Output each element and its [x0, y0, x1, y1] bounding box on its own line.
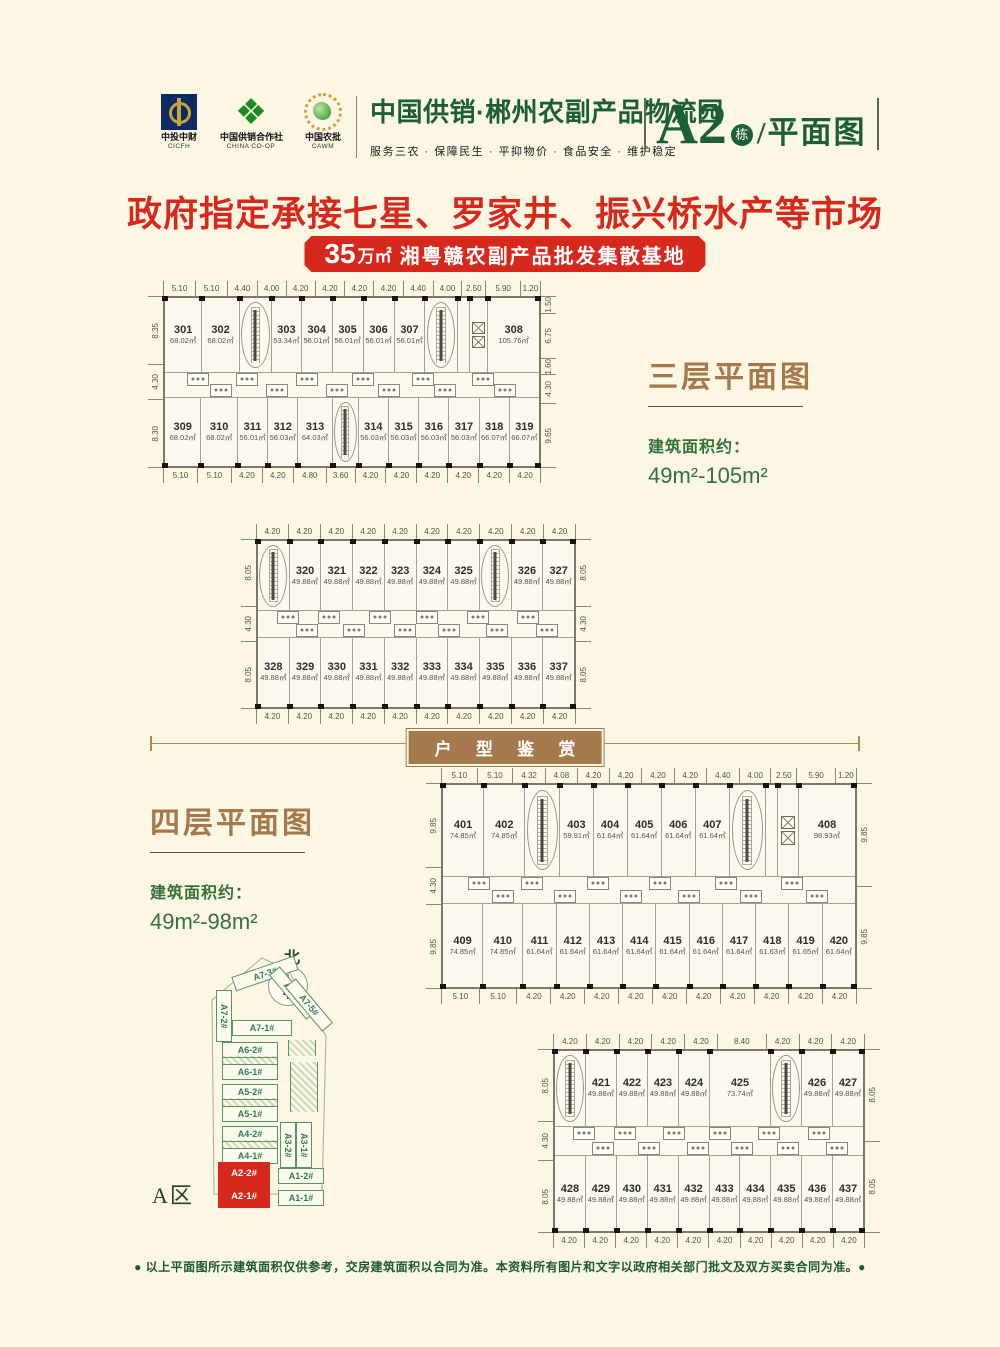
building-a2-1: A2-1# [218, 1185, 270, 1208]
room-area: 61.64㎡ [665, 831, 691, 841]
dimension-label: 5.10 [441, 989, 480, 1004]
building-a7-2: A7-2# [216, 990, 232, 1042]
dimension-label: 4.20 [721, 989, 755, 1004]
dimension-label: 5.10 [196, 281, 228, 296]
dimension-label: 9.85 [429, 939, 438, 955]
room-area: 49.88㎡ [546, 673, 572, 683]
corridor [258, 610, 574, 637]
dimension-label: 4.20 [578, 768, 610, 783]
toilet-icon [296, 624, 318, 637]
room-number: 401 [454, 819, 472, 831]
room-area: 66.07㎡ [481, 433, 507, 443]
room-413: 41361.64㎡ [589, 904, 622, 987]
title-underline [150, 852, 305, 853]
room-405: 40561.64㎡ [627, 785, 661, 876]
room-area: 61.64㎡ [693, 947, 719, 957]
dimension-label: 4.20 [803, 1233, 834, 1248]
dimension-label: 1.20 [521, 281, 541, 296]
dimension-label: 5.10 [441, 768, 478, 783]
stairs-icon [524, 785, 559, 876]
toilet-icon [649, 877, 671, 890]
dimension-label: 8.05 [579, 667, 588, 683]
room-area: 61.64㎡ [659, 947, 685, 957]
header-divider [356, 96, 357, 158]
dimension-segment: 8.05 [538, 1160, 553, 1233]
toilet-icon [467, 611, 489, 624]
room-number: 330 [328, 661, 346, 673]
dimension-segment: 4.30 [576, 606, 591, 642]
dimension-label: 4.20 [417, 709, 449, 724]
room-329: 32949.88㎡ [289, 638, 321, 707]
dimension-segment: 8.35 [148, 296, 163, 364]
room-number: 425 [731, 1077, 749, 1089]
dimension-label: 4.00 [740, 768, 772, 783]
dimension-label: 4.20 [417, 524, 449, 539]
room-325: 32549.88㎡ [447, 541, 479, 610]
dimension-label: 4.20 [553, 1233, 585, 1248]
room-number: 306 [369, 324, 387, 336]
room-302: 30268.02㎡ [201, 298, 238, 372]
room-327: 32749.88㎡ [542, 541, 574, 610]
room-334: 33449.88㎡ [447, 638, 479, 707]
dimension-label: 4.20 [448, 524, 480, 539]
dimension-label: 4.20 [832, 1034, 865, 1049]
room-area: 56.03㎡ [390, 433, 416, 443]
dimension-segment: 9.85 [426, 904, 441, 989]
logo-caption-en: CICFH [148, 143, 210, 151]
toilet-icon [492, 890, 514, 903]
dimension-segment: 8.05 [241, 539, 256, 606]
dimension-label: 5.90 [486, 281, 520, 296]
dimension-label: 4.20 [417, 468, 448, 483]
stairs-icon [479, 541, 511, 610]
room-area: 56.03㎡ [451, 433, 477, 443]
site-map: 北 A7-3# A7-2# A7-4# A7-5# A7-1# A6-2# A6… [192, 940, 350, 1212]
room-432: 43249.88㎡ [678, 1156, 709, 1231]
room-404: 40461.64㎡ [593, 785, 627, 876]
building-hatch [222, 1140, 278, 1148]
toilet-icon [554, 890, 576, 903]
coop-emblem-icon: ❖ [220, 92, 282, 132]
dimension-label: 4.20 [353, 524, 385, 539]
building-a3-2: A3-2# [280, 1122, 296, 1168]
dimension-label: 5.10 [480, 989, 518, 1004]
building-label-rule [644, 98, 646, 150]
toilet-icon [614, 1127, 636, 1140]
dimension-label: 4.20 [385, 709, 417, 724]
building-label-rule [877, 98, 879, 150]
room-area: 49.88㎡ [835, 1089, 861, 1099]
room-area: 49.88㎡ [387, 673, 413, 683]
room-area: 68.02㎡ [207, 336, 233, 346]
building-a1-1: A1-1# [278, 1190, 324, 1206]
building-a1-2: A1-2# [278, 1168, 324, 1184]
dimension-label: 4.20 [479, 468, 510, 483]
room-area: 49.88㎡ [292, 673, 318, 683]
dimension-label: 8.35 [151, 323, 160, 339]
room-area: 49.88㎡ [557, 1195, 583, 1205]
dimension-label: 4.20 [551, 989, 585, 1004]
room-409: 40974.85㎡ [443, 904, 482, 987]
room-336: 33649.88㎡ [511, 638, 543, 707]
room-313: 31364.03㎡ [297, 398, 331, 466]
room-area: 49.88㎡ [355, 673, 381, 683]
stairwell-oval [334, 402, 357, 462]
plan-main: 4.204.204.204.204.208.404.204.204.204214… [553, 1034, 865, 1248]
room-415: 41561.64㎡ [655, 904, 688, 987]
dimension-label: 4.40 [228, 281, 258, 296]
cawm-emblem-icon [292, 92, 354, 132]
room-number: 402 [495, 819, 513, 831]
room-330: 33049.88㎡ [320, 638, 352, 707]
badge-text: 湘粤赣农副产品批发集散基地 [400, 240, 686, 269]
room-314: 31456.03㎡ [358, 398, 388, 466]
top-dimension-row: 4.204.204.204.204.208.404.204.204.20 [553, 1034, 865, 1049]
room-number: 405 [635, 819, 653, 831]
room-area: 49.88㎡ [588, 1195, 614, 1205]
room-number: 430 [623, 1183, 641, 1195]
dimension-segment: 4.30 [541, 374, 556, 403]
dimension-label: 4.20 [385, 524, 417, 539]
dimension-label: 4.20 [620, 1034, 653, 1049]
room-area: 61.64㎡ [726, 947, 752, 957]
base-badge: 35 万㎡ 湘粤赣农副产品批发集散基地 [304, 236, 705, 272]
toilet-icon [210, 384, 232, 397]
room-401: 40174.85㎡ [443, 785, 483, 876]
fourth-floor-section: 四层平面图 建筑面积约： 49m²-98m² [150, 798, 315, 935]
room-area: 73.74㎡ [727, 1089, 753, 1099]
dimension-segment: 9.85 [857, 886, 872, 990]
floor-plan-third-floor-main: 8.354.308.305.105.104.404.004.204.204.20… [148, 281, 556, 483]
room-area: 49.88㎡ [804, 1195, 830, 1205]
toilet-icon [326, 384, 348, 397]
room-number: 422 [623, 1077, 641, 1089]
dimension-segment: 1.50 [541, 296, 556, 313]
dimension-label: 4.20 [263, 468, 294, 483]
room-number: 419 [796, 935, 814, 947]
stairwell-oval [527, 790, 558, 870]
vertical-dimensions: 1.506.751.604.309.65 [541, 281, 556, 483]
room-435: 43549.88㎡ [770, 1156, 801, 1231]
room-number: 435 [777, 1183, 795, 1195]
room-319: 31966.07㎡ [509, 398, 539, 466]
building-number: A2 [656, 94, 727, 154]
lower-room-row: 40974.85㎡41074.85㎡41161.64㎡41261.64㎡4136… [443, 904, 855, 987]
room-number: 326 [518, 565, 536, 577]
dimension-label: 8.05 [868, 1087, 877, 1103]
elevator-cab [472, 336, 485, 348]
vertical-dimensions: 8.054.308.05 [241, 524, 256, 724]
toilet-icon [318, 611, 340, 624]
dimension-label: 2.50 [771, 768, 797, 783]
room-area: 105.76㎡ [498, 336, 528, 346]
room-320: 32049.88㎡ [289, 541, 321, 610]
dimension-label: 4.30 [579, 616, 588, 632]
room-area: 49.88㎡ [387, 577, 413, 587]
plan-body: 30168.02㎡30268.02㎡30353.34㎡30456.01㎡3055… [163, 296, 541, 468]
room-number: 327 [550, 565, 568, 577]
room-number: 305 [338, 324, 356, 336]
toilet-icon [687, 1142, 709, 1155]
room-number: 421 [592, 1077, 610, 1089]
stairs-icon [424, 298, 456, 372]
room-number: 409 [453, 935, 471, 947]
dimension-label: 4.20 [685, 1034, 718, 1049]
room-315: 31556.03㎡ [388, 398, 418, 466]
toilet-icon [369, 611, 391, 624]
dimension-label: 4.20 [448, 709, 480, 724]
dimension-label: 8.30 [151, 426, 160, 442]
dimension-label: 4.20 [512, 709, 544, 724]
toilet-icon [592, 1142, 614, 1155]
room-number: 437 [839, 1183, 857, 1195]
dimension-label: 4.32 [513, 768, 546, 783]
dimension-label: 9.65 [544, 428, 553, 444]
room-430: 43049.88㎡ [616, 1156, 647, 1231]
park-title-block: 中国供销·郴州农副产品物流园 服务三农 · 保障民生 · 平抑物价 · 食品安全… [370, 92, 630, 159]
toilet-icon [236, 373, 258, 386]
room-437: 43749.88㎡ [832, 1156, 863, 1231]
room-number: 311 [244, 421, 262, 433]
room-308: 308105.76㎡ [487, 298, 539, 372]
toilet-icon [808, 1127, 830, 1140]
dimension-label: 4.20 [642, 768, 674, 783]
room-number: 413 [597, 935, 615, 947]
room-number: 436 [808, 1183, 826, 1195]
dimension-label: 4.20 [823, 989, 857, 1004]
toilet-icon [468, 877, 490, 890]
room-number: 308 [505, 324, 523, 336]
dimension-label: 8.05 [579, 565, 588, 581]
room-area: 61.64㎡ [699, 831, 725, 841]
room-323: 32349.88㎡ [384, 541, 416, 610]
room-419: 41961.65㎡ [788, 904, 821, 987]
building-a2-highlight: A2-2# A2-1# [218, 1162, 270, 1208]
china-coop-logo: ❖ 中国供销合作社 CHINA CO-OP [220, 92, 282, 151]
toilet-icon [378, 384, 400, 397]
building-a7-1: A7-1# [232, 1020, 292, 1036]
room-area: 61.64㎡ [826, 947, 852, 957]
dimension-label: 9.85 [429, 818, 438, 834]
top-dimension-row: 5.105.104.404.004.204.204.204.204.404.00… [163, 281, 541, 296]
toilet-icon [826, 1142, 848, 1155]
dimension-label: 4.20 [256, 524, 289, 539]
room-area: 49.88㎡ [619, 1089, 645, 1099]
room-311: 31156.01㎡ [237, 398, 267, 466]
room-424: 42449.88㎡ [678, 1051, 709, 1126]
room-number: 320 [296, 565, 314, 577]
dimension-label: 4.20 [800, 1034, 833, 1049]
plan-main: 4.204.204.204.204.204.204.204.204.204.20… [256, 524, 576, 724]
room-333: 33349.88㎡ [416, 638, 448, 707]
room-area: 74.85㎡ [490, 947, 516, 957]
room-number: 432 [684, 1183, 702, 1195]
room-408: 40898.93㎡ [798, 785, 855, 876]
plan-label: /平面图 [757, 107, 867, 152]
room-area: 56.01㎡ [303, 336, 329, 346]
dimension-segment: 8.05 [865, 1049, 880, 1141]
room-number: 315 [394, 421, 412, 433]
room-number: 411 [531, 935, 549, 947]
room-number: 424 [685, 1077, 703, 1089]
dimension-segment: 8.05 [576, 539, 591, 606]
room-number: 334 [454, 661, 472, 673]
room-427: 42749.88㎡ [832, 1051, 863, 1126]
room-number: 318 [485, 421, 503, 433]
dimension-label: 4.20 [619, 989, 653, 1004]
room-328: 32849.88㎡ [258, 638, 289, 707]
stairs-icon [770, 1051, 801, 1126]
floor-plan-fourth-floor-annex: 8.054.308.054.204.204.204.204.208.404.20… [538, 1034, 880, 1248]
room-423: 42349.88㎡ [647, 1051, 678, 1126]
room-number: 337 [550, 661, 568, 673]
room-area: 56.01㎡ [396, 336, 422, 346]
plan-main: 5.105.104.324.084.204.204.204.204.404.00… [441, 768, 857, 1004]
dimension-segment: 8.05 [576, 641, 591, 709]
dimension-label: 4.20 [512, 524, 544, 539]
plan-body: 40174.85㎡40274.85㎡40359.91㎡40461.64㎡4056… [441, 783, 857, 989]
divider-tick [858, 736, 860, 751]
room-number: 319 [515, 421, 533, 433]
room-416: 41661.64㎡ [689, 904, 722, 987]
room-area: 49.88㎡ [324, 577, 350, 587]
vertical-dimensions: 8.054.308.05 [576, 524, 591, 724]
toilet-icon [663, 1127, 685, 1140]
dimension-segment: 1.60 [541, 358, 556, 375]
area-label: 建筑面积约： [150, 879, 315, 903]
room-area: 68.02㎡ [206, 433, 232, 443]
toilet-icon [187, 373, 209, 386]
room-area: 56.03㎡ [270, 433, 296, 443]
room-number: 314 [364, 421, 382, 433]
toilet-icon [517, 611, 539, 624]
dimension-label: 4.30 [244, 616, 253, 632]
room-area: 61.64㎡ [597, 831, 623, 841]
stair-rail [494, 552, 497, 600]
lower-room-row: 30968.02㎡31068.02㎡31156.01㎡31256.03㎡3136… [165, 398, 539, 466]
room-301: 30168.02㎡ [165, 298, 201, 372]
toilet-icon [777, 1142, 799, 1155]
room-number: 312 [274, 421, 292, 433]
dimension-label: 4.20 [289, 524, 321, 539]
room-area: 66.07㎡ [511, 433, 537, 443]
dimension-label: 4.20 [585, 1233, 616, 1248]
room-area: 49.88㎡ [650, 1089, 676, 1099]
stair-rail [254, 310, 257, 361]
toilet-icon [343, 624, 365, 637]
elevator-icon [469, 298, 488, 372]
room-418: 41861.63㎡ [755, 904, 788, 987]
room-area: 59.91㎡ [563, 831, 589, 841]
stairwell-oval [241, 302, 269, 368]
room-number: 321 [328, 565, 346, 577]
room-309: 30968.02㎡ [165, 398, 200, 466]
dimension-label: 4.20 [386, 468, 417, 483]
toilet-icon [412, 373, 434, 386]
elevator-cab [781, 831, 795, 844]
park-title: 中国供销·郴州农副产品物流园 [370, 92, 630, 129]
dimension-label: 8.05 [868, 1179, 877, 1195]
room-area: 61.65㎡ [792, 947, 818, 957]
toilet-icon [620, 890, 642, 903]
room-area: 49.88㎡ [419, 577, 445, 587]
room-area: 53.34㎡ [273, 336, 299, 346]
dimension-segment: 4.30 [148, 364, 163, 399]
dimension-label: 4.80 [294, 468, 327, 483]
toilet-icon [486, 624, 508, 637]
divider-tick [150, 736, 152, 751]
room-area: 49.88㎡ [324, 673, 350, 683]
room-area: 49.88㎡ [681, 1089, 707, 1099]
dimension-segment: 4.30 [241, 606, 256, 642]
room-area: 49.88㎡ [680, 1195, 706, 1205]
room-area: 49.88㎡ [711, 1195, 737, 1205]
room-number: 414 [630, 935, 648, 947]
dimension-segment: 4.30 [426, 867, 441, 904]
dimension-segment: 8.05 [241, 641, 256, 709]
room-321: 32149.88㎡ [320, 541, 352, 610]
dimension-label: 4.20 [316, 281, 345, 296]
room-431: 43149.88㎡ [647, 1156, 678, 1231]
room-area: 56.01㎡ [365, 336, 391, 346]
room-326: 32649.88㎡ [511, 541, 543, 610]
room-403: 40359.91㎡ [559, 785, 592, 876]
room-428: 42849.88㎡ [555, 1156, 585, 1231]
stairs-icon [729, 785, 765, 876]
room-number: 412 [564, 935, 582, 947]
toilet-icon [394, 624, 416, 637]
dimension-label: 4.00 [434, 281, 463, 296]
dimension-label: 5.10 [198, 468, 232, 483]
logo-caption: 中国供销合作社 [220, 132, 282, 143]
room-number: 329 [296, 661, 314, 673]
room-area: 64.03㎡ [302, 433, 328, 443]
stairs-icon [239, 298, 271, 372]
cawm-logo: 中国农批 CAWM [292, 92, 354, 151]
room-307: 30756.01㎡ [394, 298, 425, 372]
room-number: 406 [669, 819, 687, 831]
dimension-label: 6.75 [544, 328, 553, 344]
toilet-icon [296, 373, 318, 386]
top-dimension-row: 4.204.204.204.204.204.204.204.204.204.20 [256, 524, 576, 539]
room-area: 61.63㎡ [759, 947, 785, 957]
dimension-label: 4.20 [345, 281, 374, 296]
room-number: 418 [763, 935, 781, 947]
room-area: 98.93㎡ [814, 831, 840, 841]
dimension-label: 1.20 [836, 768, 857, 783]
dimension-label: 4.20 [544, 709, 576, 724]
room-area: 49.88㎡ [804, 1089, 830, 1099]
dimension-label: 5.10 [163, 281, 196, 296]
room-area: 49.88㎡ [482, 673, 508, 683]
stairwell-oval [427, 302, 455, 368]
stair-rail [440, 310, 443, 361]
dimension-label: 4.30 [544, 381, 553, 397]
room-337: 33749.88㎡ [542, 638, 574, 707]
room-number: 302 [211, 324, 229, 336]
toilet-icon [434, 384, 456, 397]
room-number: 331 [359, 661, 377, 673]
plan-body: 42149.88㎡42249.88㎡42349.88㎡42449.88㎡4257… [553, 1049, 865, 1233]
corridor [165, 372, 539, 398]
room-number: 408 [818, 819, 836, 831]
dimension-label: 4.20 [374, 281, 403, 296]
dimension-label: 4.20 [616, 1233, 647, 1248]
stairwell-oval [259, 545, 287, 607]
dimension-label: 4.20 [256, 709, 289, 724]
toilet-icon [587, 877, 609, 890]
dimension-label: 4.20 [678, 1233, 709, 1248]
